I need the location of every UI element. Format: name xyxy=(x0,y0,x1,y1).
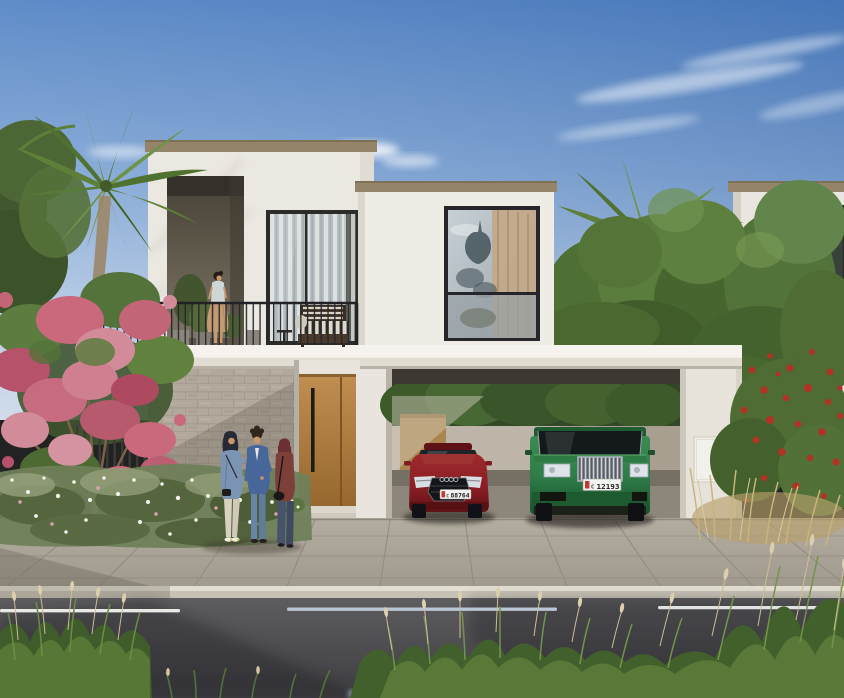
face xyxy=(254,437,261,444)
face xyxy=(216,275,221,280)
grille xyxy=(578,457,622,481)
wheel xyxy=(536,503,552,521)
side-mirror xyxy=(648,450,655,455)
crossbody-bag xyxy=(222,489,231,496)
wheel xyxy=(412,504,426,518)
hood-highlight xyxy=(420,454,476,464)
license-plate-green-suv: C 12193 xyxy=(583,479,621,491)
side-mirror xyxy=(485,461,492,466)
car-roof xyxy=(424,443,472,451)
wheel xyxy=(628,503,644,521)
upper-right-window xyxy=(444,206,540,341)
air-intake xyxy=(632,492,647,501)
headlight-left xyxy=(544,464,570,477)
blazer xyxy=(247,445,270,494)
cloud xyxy=(382,155,438,167)
plate-code: C xyxy=(591,485,594,491)
green-suv: C 12193 xyxy=(525,427,655,528)
air-intake xyxy=(540,492,566,501)
wheel xyxy=(468,504,482,518)
plate-code: C xyxy=(446,493,449,499)
lane-dash xyxy=(287,608,557,611)
wide-pants xyxy=(277,501,286,545)
top xyxy=(211,281,225,303)
plate-number: 88764 xyxy=(451,493,470,500)
handbag xyxy=(274,492,285,501)
curb xyxy=(0,586,844,598)
ceiling-shadow xyxy=(392,369,680,384)
villa-exterior-scene: C 88764 C 12193 xyxy=(0,0,844,698)
plate-number: 12193 xyxy=(597,483,620,491)
plate-emblem xyxy=(442,491,446,497)
door-handle[interactable] xyxy=(311,388,315,472)
lane-dash xyxy=(0,609,180,612)
jeans xyxy=(251,494,257,539)
license-plate-red-sedan: C 88764 xyxy=(440,490,471,500)
face xyxy=(228,438,235,445)
side-mirror xyxy=(525,450,532,455)
shoe xyxy=(251,539,259,543)
side-mirror xyxy=(404,461,411,466)
plate-emblem xyxy=(585,481,589,489)
